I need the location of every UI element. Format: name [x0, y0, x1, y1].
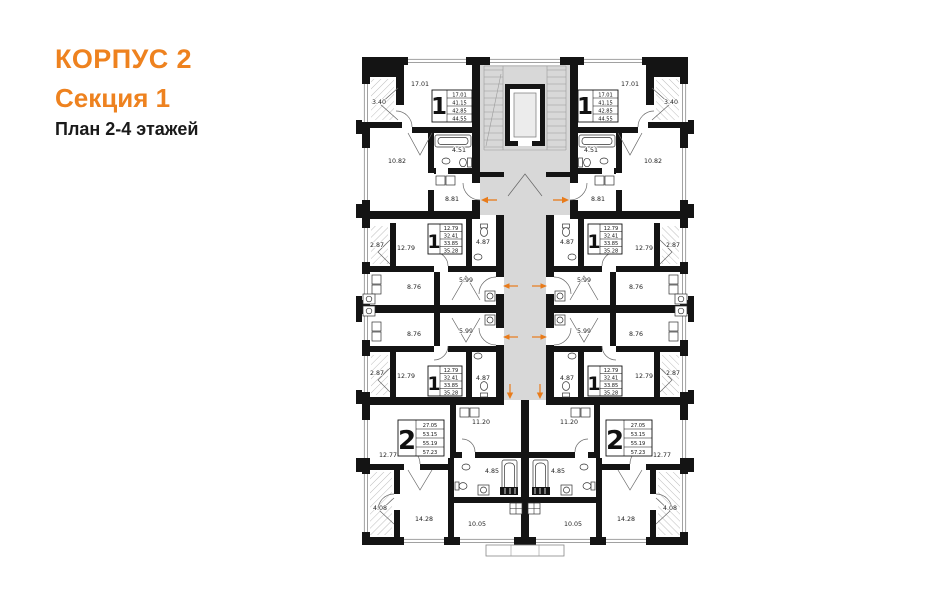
apartment-table: 1 12.79 32.41 33.85 35.28: [587, 366, 622, 396]
room-area-label: 5.99: [459, 277, 473, 284]
sink-icon: [442, 158, 450, 164]
sink-icon: [474, 353, 482, 359]
apartment-table: 1 12.79 32.41 33.85 35.28: [427, 366, 462, 396]
room-area-label: 14.28: [415, 516, 433, 523]
room-area-label: 10.82: [644, 158, 662, 165]
room-area-label: 12.79: [635, 245, 653, 252]
room-area-label: 14.28: [617, 516, 635, 523]
svg-text:17.01: 17.01: [452, 92, 467, 98]
svg-text:35.28: 35.28: [444, 390, 459, 396]
sink-icon: [474, 254, 482, 260]
svg-text:33.85: 33.85: [604, 241, 619, 247]
svg-text:33.85: 33.85: [444, 241, 459, 247]
svg-text:53.15: 53.15: [631, 432, 646, 438]
svg-text:41.15: 41.15: [598, 100, 613, 106]
room-area-label: 3.40: [664, 99, 678, 106]
room-area-label: 4.51: [452, 147, 466, 154]
toilet-icon: [480, 228, 487, 237]
room-area-label: 4.87: [476, 239, 490, 246]
svg-text:41.15: 41.15: [452, 100, 467, 106]
top-window: [490, 57, 560, 65]
svg-text:44.55: 44.55: [452, 116, 467, 122]
toilet-icon: [459, 483, 467, 490]
room-area-label: 11.20: [472, 419, 490, 426]
floor-plan: 1 17.01 41.15 42.85 44.55 1 17.01 41.15 …: [0, 0, 941, 600]
svg-text:35.28: 35.28: [444, 248, 459, 254]
room-area-label: 4.08: [663, 505, 677, 512]
room-area-label: 11.20: [560, 419, 578, 426]
room-area-label: 4.87: [476, 375, 490, 382]
svg-text:1: 1: [577, 94, 593, 120]
svg-text:2: 2: [398, 426, 416, 456]
svg-text:1: 1: [427, 373, 440, 395]
room-area-label: 3.40: [372, 99, 386, 106]
sink-icon: [462, 464, 470, 470]
apartment-table: 1 17.01 41.15 42.85 44.55: [577, 90, 618, 122]
room-area-label: 8.81: [445, 196, 459, 203]
room-area-label: 5.99: [577, 328, 591, 335]
room-area-label: 8.76: [407, 331, 421, 338]
room-area-label: 2.87: [666, 242, 680, 249]
svg-text:12.79: 12.79: [444, 226, 459, 232]
room-area-label: 4.87: [560, 239, 574, 246]
room-area-label: 4.85: [551, 468, 565, 475]
apartment-table: 2 27.05 53.15 55.19 57.23: [398, 420, 444, 456]
room-area-label: 8.76: [407, 284, 421, 291]
svg-text:12.79: 12.79: [444, 368, 459, 374]
svg-text:1: 1: [587, 373, 600, 395]
apartment-table: 1 12.79 32.41 33.85 35.28: [587, 224, 622, 254]
room-area-label: 8.81: [591, 196, 605, 203]
svg-text:27.05: 27.05: [631, 423, 646, 429]
toilet-icon: [460, 158, 467, 166]
entrance-porch: [486, 545, 564, 556]
svg-text:12.79: 12.79: [604, 368, 619, 374]
svg-text:1: 1: [431, 94, 447, 120]
svg-text:53.15: 53.15: [423, 432, 438, 438]
room-area-label: 12.79: [635, 373, 653, 380]
apartment-table: 1 17.01 41.15 42.85 44.55: [431, 90, 472, 122]
svg-text:55.19: 55.19: [631, 441, 646, 447]
svg-text:27.05: 27.05: [423, 423, 438, 429]
room-area-label: 2.87: [370, 370, 384, 377]
room-area-label: 5.99: [577, 277, 591, 284]
svg-text:1: 1: [427, 231, 440, 253]
room-area-label: 8.76: [629, 284, 643, 291]
apartment-table: 1 12.79 32.41 33.85 35.28: [427, 224, 462, 254]
svg-text:42.85: 42.85: [452, 108, 467, 114]
room-area-label: 17.01: [411, 81, 429, 88]
room-area-label: 4.51: [584, 147, 598, 154]
stove-icon: [436, 176, 445, 185]
room-area-label: 12.77: [653, 452, 671, 459]
elevator: [505, 84, 545, 146]
room-area-label: 17.01: [621, 81, 639, 88]
svg-text:12.79: 12.79: [604, 226, 619, 232]
room-area-label: 4.08: [373, 505, 387, 512]
apartment-table: 2 27.05 53.15 55.19 57.23: [606, 420, 652, 456]
svg-text:33.85: 33.85: [444, 383, 459, 389]
room-area-label: 4.85: [485, 468, 499, 475]
room-area-label: 2.87: [666, 370, 680, 377]
room-area-label: 2.87: [370, 242, 384, 249]
room-area-label: 10.82: [388, 158, 406, 165]
svg-text:55.19: 55.19: [423, 441, 438, 447]
room-area-label: 8.76: [629, 331, 643, 338]
svg-text:32.41: 32.41: [444, 375, 459, 381]
svg-text:35.28: 35.28: [604, 390, 619, 396]
svg-text:32.41: 32.41: [604, 375, 619, 381]
svg-text:42.85: 42.85: [598, 108, 613, 114]
svg-text:32.41: 32.41: [444, 233, 459, 239]
room-area-label: 12.79: [397, 245, 415, 252]
svg-text:57.23: 57.23: [631, 450, 646, 456]
room-area-label: 10.05: [564, 521, 582, 528]
svg-text:44.55: 44.55: [598, 116, 613, 122]
room-area-label: 12.79: [397, 373, 415, 380]
svg-text:33.85: 33.85: [604, 383, 619, 389]
room-area-label: 12.77: [379, 452, 397, 459]
svg-text:35.28: 35.28: [604, 248, 619, 254]
svg-text:57.23: 57.23: [423, 450, 438, 456]
svg-text:32.41: 32.41: [604, 233, 619, 239]
toilet-icon: [480, 382, 487, 391]
svg-text:17.01: 17.01: [598, 92, 613, 98]
room-area-label: 10.05: [468, 521, 486, 528]
svg-text:1: 1: [587, 231, 600, 253]
svg-text:2: 2: [606, 426, 624, 456]
room-area-label: 4.87: [560, 375, 574, 382]
room-area-label: 5.99: [459, 328, 473, 335]
